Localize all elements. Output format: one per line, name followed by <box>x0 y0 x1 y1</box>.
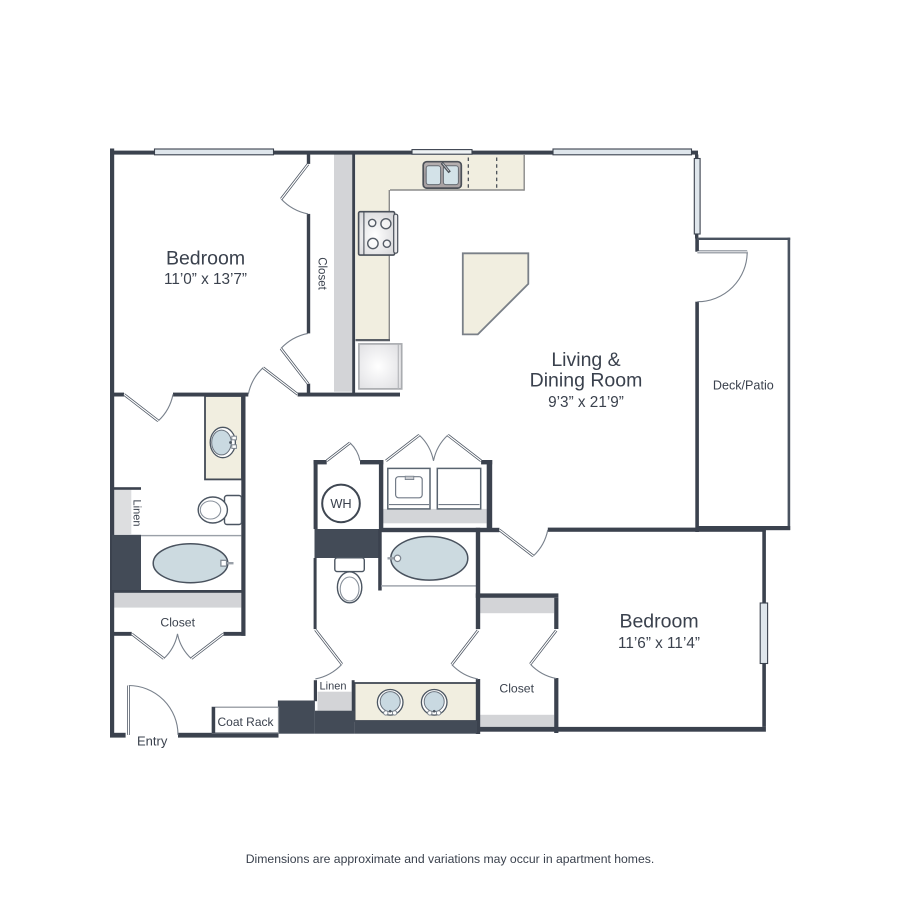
svg-text:Closet: Closet <box>499 681 534 695</box>
svg-text:Entry: Entry <box>137 734 168 749</box>
svg-text:Linen: Linen <box>320 680 347 692</box>
svg-text:Dining Room: Dining Room <box>530 370 643 392</box>
svg-text:Dimensions are approximate and: Dimensions are approximate and variation… <box>246 852 654 866</box>
svg-text:Bedroom: Bedroom <box>166 248 245 270</box>
svg-text:Bedroom: Bedroom <box>619 611 698 633</box>
svg-text:Closet: Closet <box>315 257 327 290</box>
svg-text:Coat Rack: Coat Rack <box>217 715 274 729</box>
svg-text:Living &: Living & <box>551 349 620 371</box>
svg-text:11’6” x 11’4”: 11’6” x 11’4” <box>618 635 700 652</box>
svg-text:9’3” x 21’9”: 9’3” x 21’9” <box>548 394 624 411</box>
svg-text:Closet: Closet <box>160 616 195 630</box>
svg-text:Deck/Patio: Deck/Patio <box>713 379 774 393</box>
svg-text:Linen: Linen <box>131 500 143 527</box>
svg-text:11’0” x 13’7”: 11’0” x 13’7” <box>164 271 247 288</box>
svg-text:WH: WH <box>330 496 351 511</box>
